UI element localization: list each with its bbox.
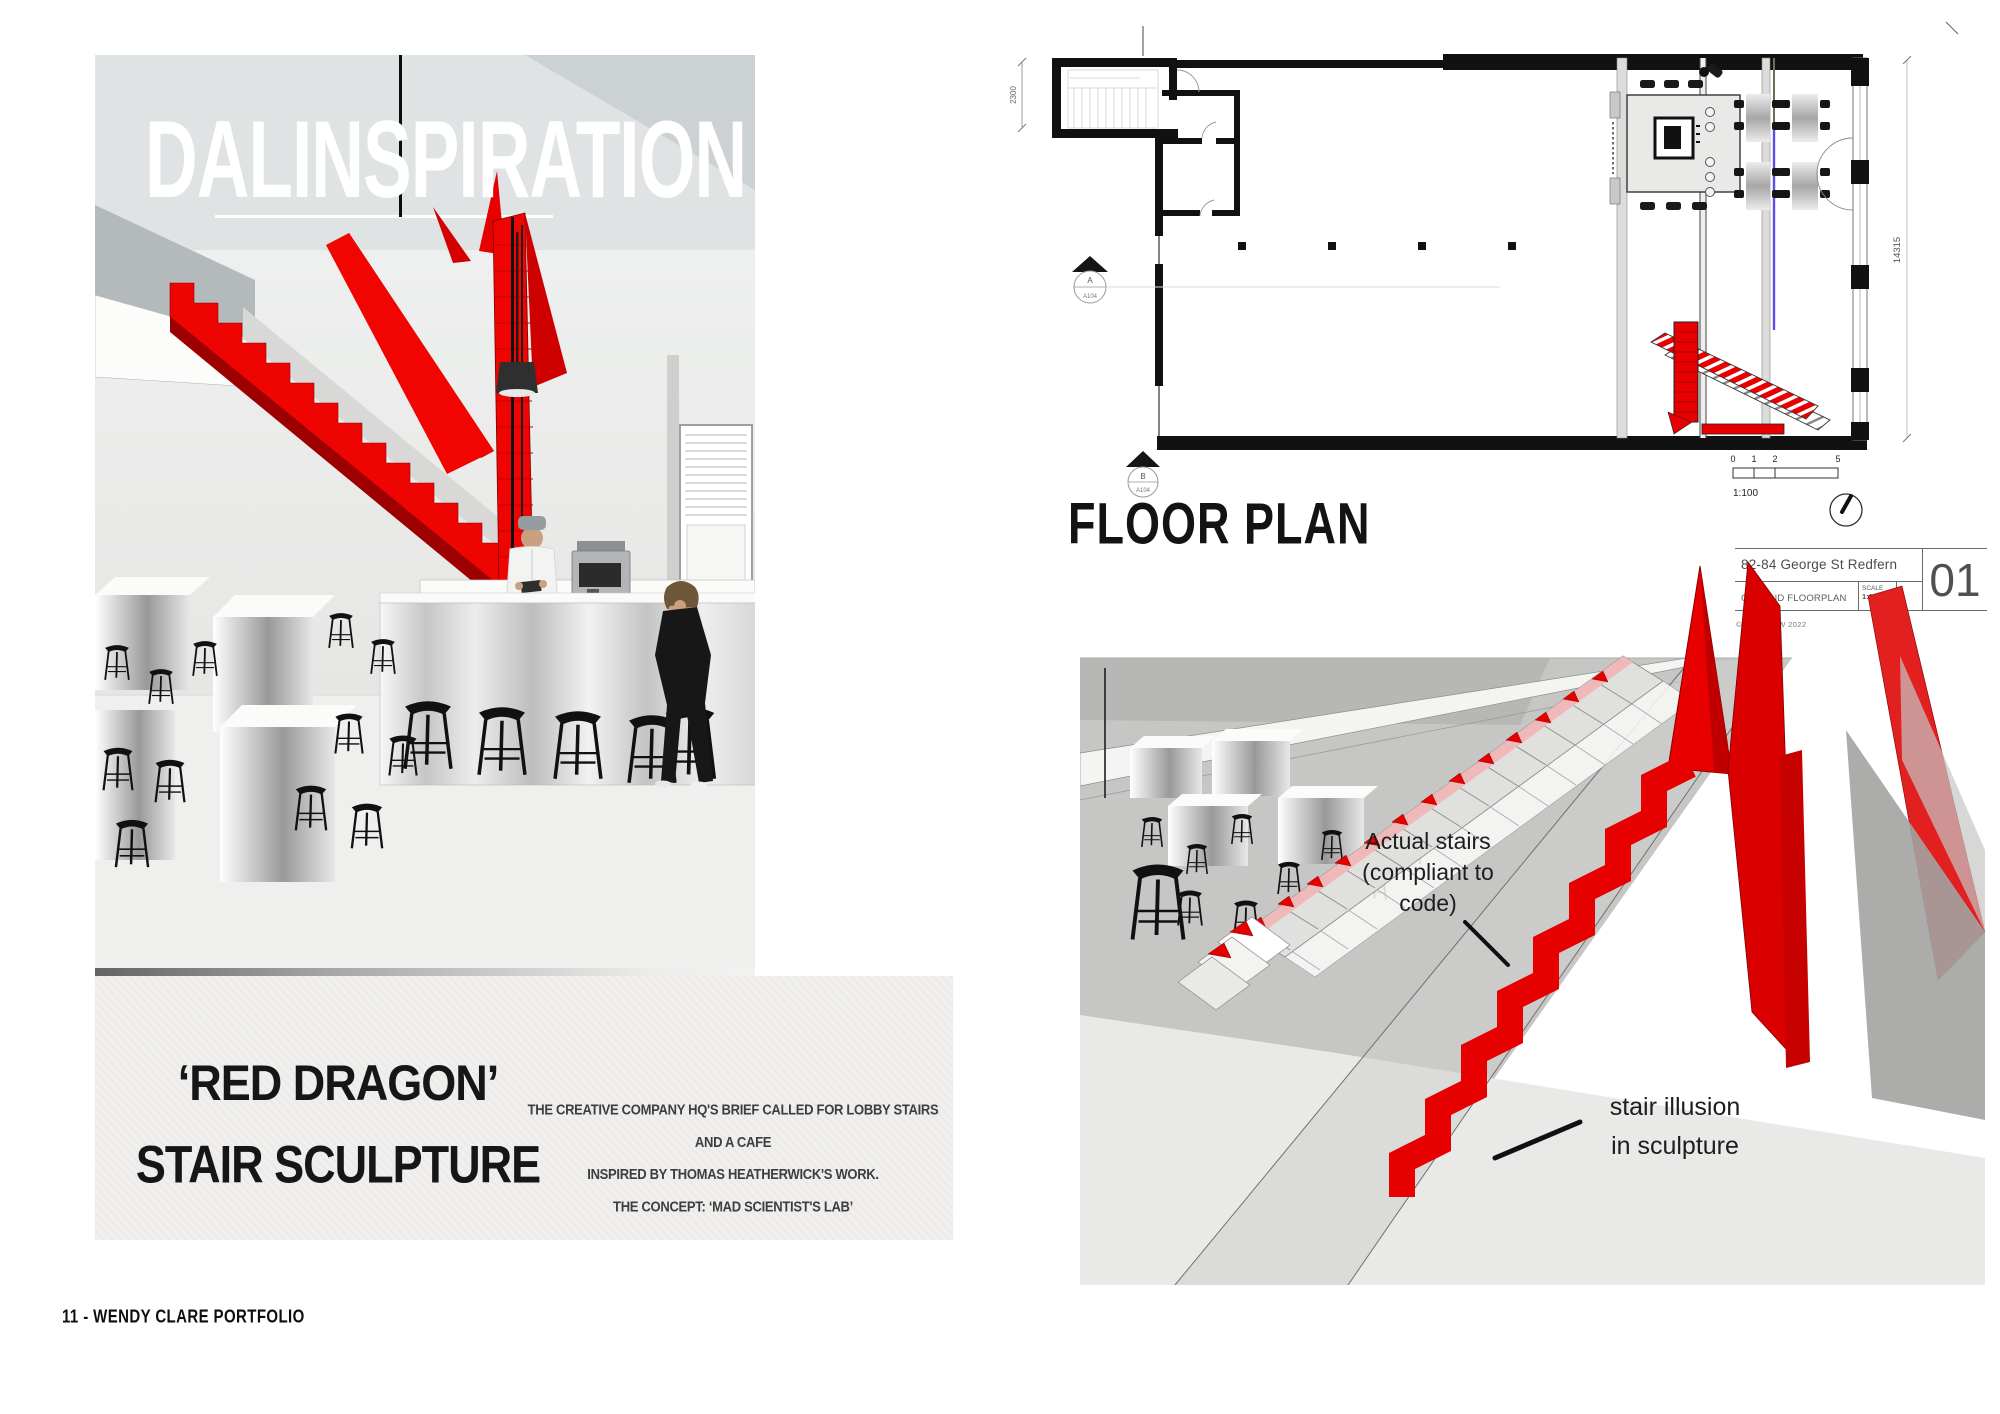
page-footer: 11 - WENDY CLARE PORTFOLIO xyxy=(62,1306,305,1327)
stair-detail-illustration xyxy=(1080,560,1985,1285)
annotation-line: Actual stairs xyxy=(1330,826,1526,857)
description-line: THE CREATIVE COMPANY HQ'S BRIEF CALLED F… xyxy=(515,1094,951,1158)
stairwell xyxy=(1052,58,1178,138)
dimension-text: 14315 xyxy=(1892,237,1903,263)
description-line: INSPIRED BY THOMAS HEATHERWICK'S WORK. xyxy=(515,1158,951,1190)
scale-bar: 0 1 2 5 1:100 xyxy=(1730,454,1840,499)
cable-icon xyxy=(511,217,514,587)
portfolio-page: DALINSPIRATION ‘RED DRAGON’ STAIR SCULPT… xyxy=(0,0,2000,1414)
caption-band: ‘RED DRAGON’ STAIR SCULPTURE THE CREATIV… xyxy=(95,976,953,1240)
dimension-text: 2300 xyxy=(1010,86,1018,104)
stair-detail-render-panel: Actual stairs (compliant to code) stair … xyxy=(1080,560,1985,1285)
marker-sheet: A104 xyxy=(1083,294,1098,300)
description-line: THE CONCEPT: ‘MAD SCIENTIST'S LAB’ xyxy=(515,1191,951,1223)
annotation-actual-stairs: Actual stairs (compliant to code) xyxy=(1330,826,1526,919)
dimension-right: 14315 xyxy=(1892,56,1911,442)
dining-tables xyxy=(1734,94,1830,210)
floor-plan-heading: FLOOR PLAN xyxy=(1068,490,1370,558)
window-wall xyxy=(1817,58,1869,440)
red-sculpture xyxy=(1668,562,1985,1120)
annotation-stair-illusion: stair illusion in sculpture xyxy=(1560,1088,1790,1166)
scale-tick: 5 xyxy=(1835,454,1840,464)
annotation-line: code) xyxy=(1330,888,1526,919)
panel-title: DALINSPIRATION xyxy=(145,98,745,223)
scale-ratio: 1:100 xyxy=(1733,488,1758,499)
red-dragon-render-panel: DALINSPIRATION xyxy=(95,55,755,970)
annotation-line: stair illusion xyxy=(1560,1088,1790,1127)
annotation-line: (compliant to xyxy=(1330,857,1526,888)
north-indicator-icon xyxy=(1830,494,1862,526)
scale-tick: 2 xyxy=(1772,454,1777,464)
section-marker-a: A A104 xyxy=(1072,256,1500,303)
annotation-line: in sculpture xyxy=(1560,1127,1790,1166)
marker-letter: B xyxy=(1140,472,1145,481)
scale-tick: 1 xyxy=(1751,454,1756,464)
project-description: THE CREATIVE COMPANY HQ'S BRIEF CALLED F… xyxy=(515,1094,951,1223)
marker-letter: A xyxy=(1087,276,1093,285)
red-dragon-heading: ‘RED DRAGON’ xyxy=(123,1054,553,1112)
stair-sculpture-heading: STAIR SCULPTURE xyxy=(123,1134,553,1195)
kitchen-island xyxy=(1610,63,1740,210)
floor-plan-panel: A A104 B A104 2300 14 xyxy=(1010,10,1990,655)
plan-red-stair xyxy=(1651,322,1830,434)
interior-walls xyxy=(1155,70,1240,436)
structural-columns xyxy=(1238,242,1516,250)
divider-gradient-bar xyxy=(95,968,755,976)
dimension-left: 2300 xyxy=(1010,58,1026,132)
dim-tick xyxy=(1946,22,1958,34)
scale-tick: 0 xyxy=(1730,454,1735,464)
